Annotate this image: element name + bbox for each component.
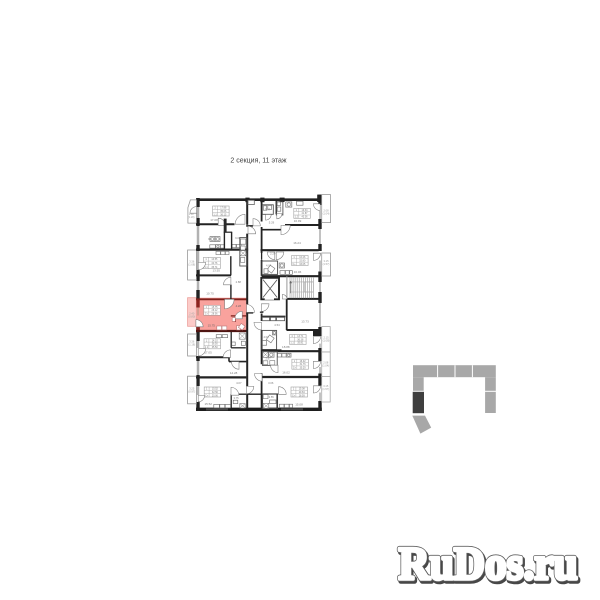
svg-text:2.29: 2.29 [270,251,276,255]
svg-text:3.75: 3.75 [233,396,239,400]
svg-text:15.52: 15.52 [204,402,212,406]
svg-text:28.59: 28.59 [299,394,306,397]
svg-text:13.73: 13.73 [301,319,309,323]
svg-text:5.29: 5.29 [269,220,275,224]
svg-text:14.28: 14.28 [230,371,238,375]
svg-text:34.76: 34.76 [211,262,218,265]
svg-text:2.87: 2.87 [265,356,271,360]
svg-text:16.02: 16.02 [282,371,290,375]
svg-text:16.99: 16.99 [294,219,302,223]
svg-text:13.55: 13.55 [212,269,220,273]
svg-text:4.54: 4.54 [274,323,280,327]
svg-text:15.75: 15.75 [208,323,216,327]
svg-text:35.81: 35.81 [297,342,304,345]
svg-text:(1.08): (1.08) [323,339,330,343]
svg-text:16.06: 16.06 [294,270,302,274]
svg-text:2 секция, 11 этаж: 2 секция, 11 этаж [230,157,287,164]
svg-text:13.55: 13.55 [211,258,218,261]
svg-text:2.88: 2.88 [236,280,242,284]
svg-text:4.03: 4.03 [263,335,269,339]
svg-text:35.50: 35.50 [212,346,219,349]
svg-text:43.36: 43.36 [302,216,309,219]
svg-text:16.24: 16.24 [293,241,301,245]
svg-text:10.75: 10.75 [206,292,214,296]
svg-text:3.55: 3.55 [269,395,275,399]
svg-text:(1.57): (1.57) [323,262,330,266]
svg-text:(0.80): (0.80) [188,315,195,319]
svg-text:4.28: 4.28 [236,304,242,308]
svg-text:(0.97): (0.97) [188,390,195,394]
svg-text:(1.57): (1.57) [322,387,329,391]
svg-text:30.29: 30.29 [300,367,307,370]
svg-text:(1.20): (1.20) [188,216,194,219]
svg-text:(1.04): (1.04) [322,364,329,368]
svg-text:RuDos.ru: RuDos.ru [399,538,578,590]
svg-text:33.05: 33.05 [299,263,306,266]
svg-text:(1.18): (1.18) [188,343,195,347]
svg-text:36.15: 36.15 [220,213,227,216]
svg-text:18.88: 18.88 [282,345,290,349]
svg-text:28.06: 28.06 [212,313,219,316]
svg-text:4.07: 4.07 [236,381,242,385]
svg-text:(1.04): (1.04) [323,212,330,216]
svg-text:17.08: 17.08 [210,218,218,222]
svg-text:3.97: 3.97 [265,208,271,212]
svg-text:(1.68): (1.68) [188,263,195,267]
svg-text:15.08: 15.08 [295,402,303,406]
svg-text:3.06: 3.06 [268,381,274,385]
svg-text:25.06: 25.06 [212,394,219,397]
